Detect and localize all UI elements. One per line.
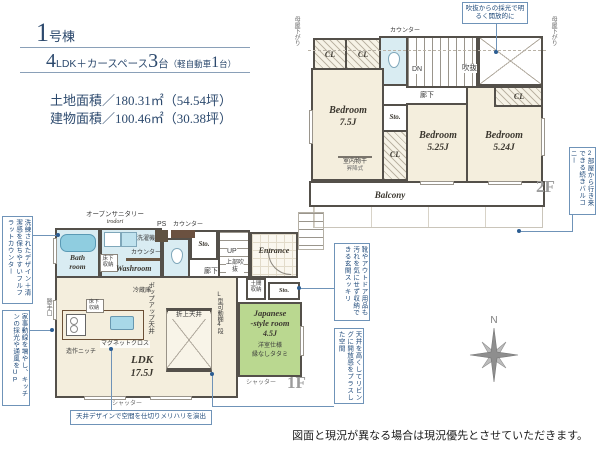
kitchen-door-opening	[53, 300, 57, 320]
leader-line	[212, 406, 334, 407]
f2-bedroom-3-name: Bedroom	[478, 130, 530, 142]
f1-shelf-label: L型可動棚4段	[215, 292, 222, 336]
land-area: 土地面積／180.31㎡（54.54坪）	[50, 90, 232, 109]
bathtub-icon	[60, 234, 96, 252]
leader-line	[30, 330, 52, 331]
leader-line	[33, 235, 57, 236]
f1-ldk-name: LDK	[116, 354, 168, 367]
leader-dot	[517, 229, 521, 233]
f2-floor-label: 2F	[536, 177, 555, 197]
f1-magnet-label: マグネットクロス	[100, 341, 150, 348]
f1-open-sanitary-label: オープンサニタリー	[84, 211, 146, 219]
window	[309, 110, 313, 144]
f1-japanese-name-2: -style room	[242, 318, 298, 328]
f1-callout-ceiling: 天井デザインで空間を仕切りメリハリを演出	[70, 410, 212, 425]
f2-void-label: 吹抜	[462, 64, 477, 73]
f2-balcony-label: Balcony	[360, 190, 420, 201]
f1-japanese-note-1: 洋室仕様	[242, 343, 298, 350]
washbasin-icon	[104, 232, 121, 247]
leader-line	[496, 24, 497, 51]
disclaimer-text: 図面と現況が異なる場合は現況優先とさせていただきます。	[292, 427, 588, 443]
leader-line	[212, 375, 213, 407]
f1-void-above-label: 上部吹抜	[226, 260, 244, 274]
building-number-suffix: 号棟	[49, 29, 75, 44]
counter-icon	[126, 258, 160, 261]
leader-dot	[56, 233, 60, 237]
window	[420, 181, 454, 185]
f2-closet-4-label: CL	[507, 92, 531, 101]
f1-callout-kitchen: 家事動線を増やし、キッチンの採光や通風をUP	[2, 310, 30, 406]
f2-bedroom-2-size: 5.25J	[412, 143, 464, 154]
layout-line: 4LDK＋カースペース3台（軽自動車1台）	[46, 50, 236, 73]
f1-doma-label: 土間収納	[248, 281, 264, 294]
f1-callout-entrance: 靴やアウトドア用品も汚れを気にせず収納できる玄関スッキリ	[334, 243, 370, 321]
f1-washer-label: 洗濯機	[137, 236, 155, 243]
compass-n-label: N	[490, 315, 497, 326]
ldk-count: 4	[46, 50, 56, 72]
f2-stairs	[406, 36, 478, 88]
f1-shutter-label-2: シャッター	[246, 380, 276, 387]
leader-dot	[109, 347, 113, 351]
f2-moya-right: 母屋下がり	[549, 16, 556, 60]
counter-icon	[171, 230, 195, 238]
ldk-text: LDK＋カースペース	[56, 58, 148, 70]
f2-counter-label: カウンター	[390, 28, 420, 35]
f1-underfloor-1-label: 床下収納	[101, 256, 115, 269]
f2-closet-3-label: CL	[384, 150, 406, 159]
leader-dot	[297, 286, 301, 290]
f2-callout-balcony: 2部屋から行き来できる続きバルコニー	[569, 147, 596, 215]
f2-bedroom-1-size: 7.5J	[322, 118, 374, 129]
ps-shaft-icon	[155, 230, 168, 242]
f2-callout-void: 吹抜からの採光で明るく開放的に	[462, 2, 528, 24]
f1-niche-label: 造作ニッチ	[66, 349, 96, 356]
kei-close: 台）	[219, 59, 236, 69]
f2-bedroom-1-name: Bedroom	[322, 105, 374, 117]
f1-japanese-name-1: Japanese	[242, 308, 298, 318]
window	[150, 396, 192, 400]
header-rule-bottom	[20, 72, 250, 73]
f1-kitchen-door-label: 勝手口	[44, 298, 51, 324]
f2-indoor-drying-type: 昇降式	[338, 166, 372, 172]
window	[84, 396, 126, 400]
leader-line	[521, 231, 573, 232]
f2-void-room	[478, 36, 543, 86]
building-number-big: 1	[36, 18, 49, 47]
f1-popup-ceiling-label: ポップアップ天井	[146, 282, 154, 336]
kei-open: （軽自動車	[169, 59, 212, 69]
f1-ldk-size: 17.5J	[116, 368, 168, 380]
f1-storage-2-label: Sto.	[270, 287, 298, 295]
window	[488, 181, 522, 185]
burner-icon	[70, 317, 78, 325]
f1-porch-steps	[298, 212, 324, 250]
drying-pole-icon	[338, 156, 372, 158]
washing-machine-icon	[121, 232, 137, 247]
burner-icon	[70, 325, 78, 333]
f1-washroom-label: Washroom	[116, 264, 151, 273]
building-number: 1号棟	[36, 18, 75, 48]
f1-coffered-label: 折上天井	[168, 311, 210, 319]
f2-moya-left: 母屋下がり	[292, 16, 299, 60]
f1-callout-living: 天井を高くしてリビングに開放感をプラスした空間	[334, 328, 364, 404]
f2-bedroom-3-size: 5.24J	[478, 143, 530, 154]
compass-icon: N	[466, 310, 522, 386]
car-count: 3	[148, 50, 158, 72]
moya-dashed-line	[308, 50, 546, 51]
leader-line	[572, 215, 573, 232]
header-rule-top	[20, 47, 250, 48]
f1-hallway-label: 廊下	[204, 268, 218, 276]
f1-floor-label: 1F	[287, 373, 306, 393]
f1-callout-counter: 洗練されたデザイン＋清潔感を保ちやすいフルフラットカウンター	[2, 216, 33, 304]
f1-counter-top-label: カウンター	[173, 222, 203, 229]
leader-dot	[50, 328, 54, 332]
f1-bath-label: Bath room	[62, 254, 93, 272]
window	[53, 238, 57, 264]
f1-storage-1-label: Sto.	[192, 240, 216, 248]
f1-entrance-label: Entrance	[258, 246, 290, 255]
f2-roof-overhang	[313, 207, 543, 228]
f1-shutter-label-1: シャッター	[112, 401, 142, 408]
car-unit: 台	[158, 58, 169, 70]
building-area: 建物面積／100.46㎡（30.38坪）	[50, 108, 232, 127]
f1-underfloor-2-label: 床下収納	[87, 300, 101, 312]
f2-closet-2-label: CL	[351, 50, 375, 59]
f1-japanese-size: 4.5J	[242, 329, 298, 338]
f2-bedroom-2-name: Bedroom	[412, 130, 464, 142]
leader-line	[300, 288, 334, 289]
f2-closet-1-label: CL	[318, 50, 342, 59]
leader-dot	[494, 50, 498, 54]
leader-line	[111, 350, 112, 410]
f1-japanese-note-2: 縁なしタタミ	[242, 352, 298, 359]
window	[541, 118, 545, 156]
f1-counter-label: カウンター	[131, 250, 161, 257]
kei-count: 1	[211, 54, 219, 71]
f2-dn-label: DN	[412, 66, 422, 74]
f1-ps-label: PS	[157, 221, 166, 229]
f1-up-label: UP	[227, 248, 237, 256]
floorplan-page: 1号棟 4LDK＋カースペース3台（軽自動車1台） 土地面積／180.31㎡（5…	[0, 0, 600, 450]
f2-hallway-label: 廊下	[420, 92, 434, 100]
sink-icon	[110, 316, 134, 330]
leader-dot	[210, 372, 214, 376]
f1-open-sanitary-brand: irodori	[84, 219, 146, 226]
window	[300, 326, 304, 356]
f2-storage-label: Sto.	[384, 113, 406, 121]
